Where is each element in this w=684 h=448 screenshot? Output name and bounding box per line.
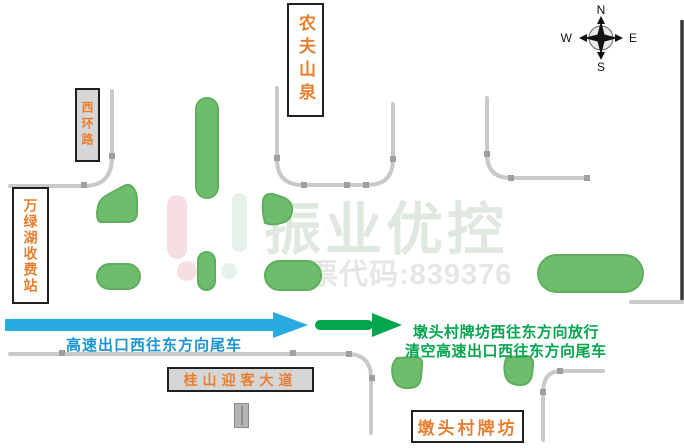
label-box-nongfu-shanquan: 农夫山泉 [287,3,324,117]
road-network-layer: N S W E [0,0,684,448]
green-island-west-pill [97,264,140,289]
green-island-median-south [198,252,215,290]
compass-west-label: W [561,31,573,45]
green-island-center-blob [263,194,292,225]
road-edge-south-east [543,371,603,440]
blue-flow-caption: 高速出口西往东方向尾车 [66,334,242,355]
traffic-signal-cabinet-icon [234,403,249,428]
road-edge-south-west [10,354,371,433]
compass-south-label: S [597,60,605,74]
green-flow-caption-line1: 墩头村牌坊西往东方向放行 [413,321,599,342]
compass-icon: N S W E [561,3,637,74]
traffic-diagram-canvas: 振业优控 股票代码:839376 [0,0,684,448]
label-box-xi-huan-lu: 西环路 [75,88,100,162]
compass-east-label: E [629,31,637,45]
green-island-median-north [196,98,218,198]
green-flow-arrow [315,313,402,337]
label-box-wanlvhu-toll-station: 万绿湖收费站 [12,187,49,304]
label-box-guishan-avenue: 桂山迎客大道 [167,367,314,392]
green-island-south-blob-1 [392,357,422,388]
road-edge-northeast-corner [487,98,588,178]
green-flow-caption-line2: 清空高速出口西往东方向尾车 [405,340,607,361]
green-island-west-triangle [97,185,137,222]
label-box-duntou-archway: 墩头村牌坊 [411,410,524,443]
green-island-east-pill [538,255,643,292]
cabinet-stripe [241,406,243,425]
compass-north-label: N [597,3,606,17]
green-island-center-pill [265,261,321,290]
